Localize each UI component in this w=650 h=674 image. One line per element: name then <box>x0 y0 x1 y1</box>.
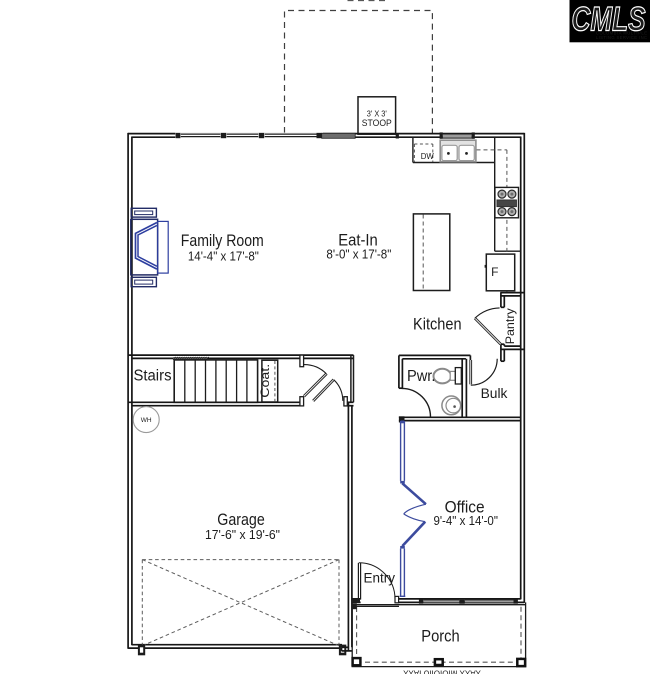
svg-text:Pantry: Pantry <box>503 308 517 344</box>
svg-text:XAXX MIOIOIIU IAXX: XAXX MIOIOIIU IAXX <box>402 669 480 674</box>
svg-text:Stairs: Stairs <box>134 368 172 385</box>
svg-text:Entry: Entry <box>364 571 396 586</box>
svg-text:STOOP: STOOP <box>362 118 392 129</box>
svg-text:17'-6" x 19'-6": 17'-6" x 19'-6" <box>205 528 280 542</box>
svg-text:LISTING SERVICE INC: LISTING SERVICE INC <box>596 35 647 40</box>
svg-text:Porch: Porch <box>421 627 460 645</box>
svg-text:Garage: Garage <box>217 511 265 529</box>
svg-text:9'-4" x 14'-0": 9'-4" x 14'-0" <box>433 514 498 528</box>
svg-text:Kitchen: Kitchen <box>413 315 462 333</box>
svg-text:14'-4" x 17'-8": 14'-4" x 17'-8" <box>188 249 259 263</box>
svg-text:WH: WH <box>141 417 152 424</box>
svg-text:Family Room: Family Room <box>181 232 264 250</box>
svg-text:Coat.: Coat. <box>260 364 272 398</box>
svg-text:F: F <box>491 265 498 279</box>
svg-text:Pwr.: Pwr. <box>407 368 436 385</box>
svg-text:Bulk: Bulk <box>481 386 508 401</box>
svg-text:DW: DW <box>421 152 435 161</box>
svg-text:8'-0" x 17'-8": 8'-0" x 17'-8" <box>326 247 391 261</box>
